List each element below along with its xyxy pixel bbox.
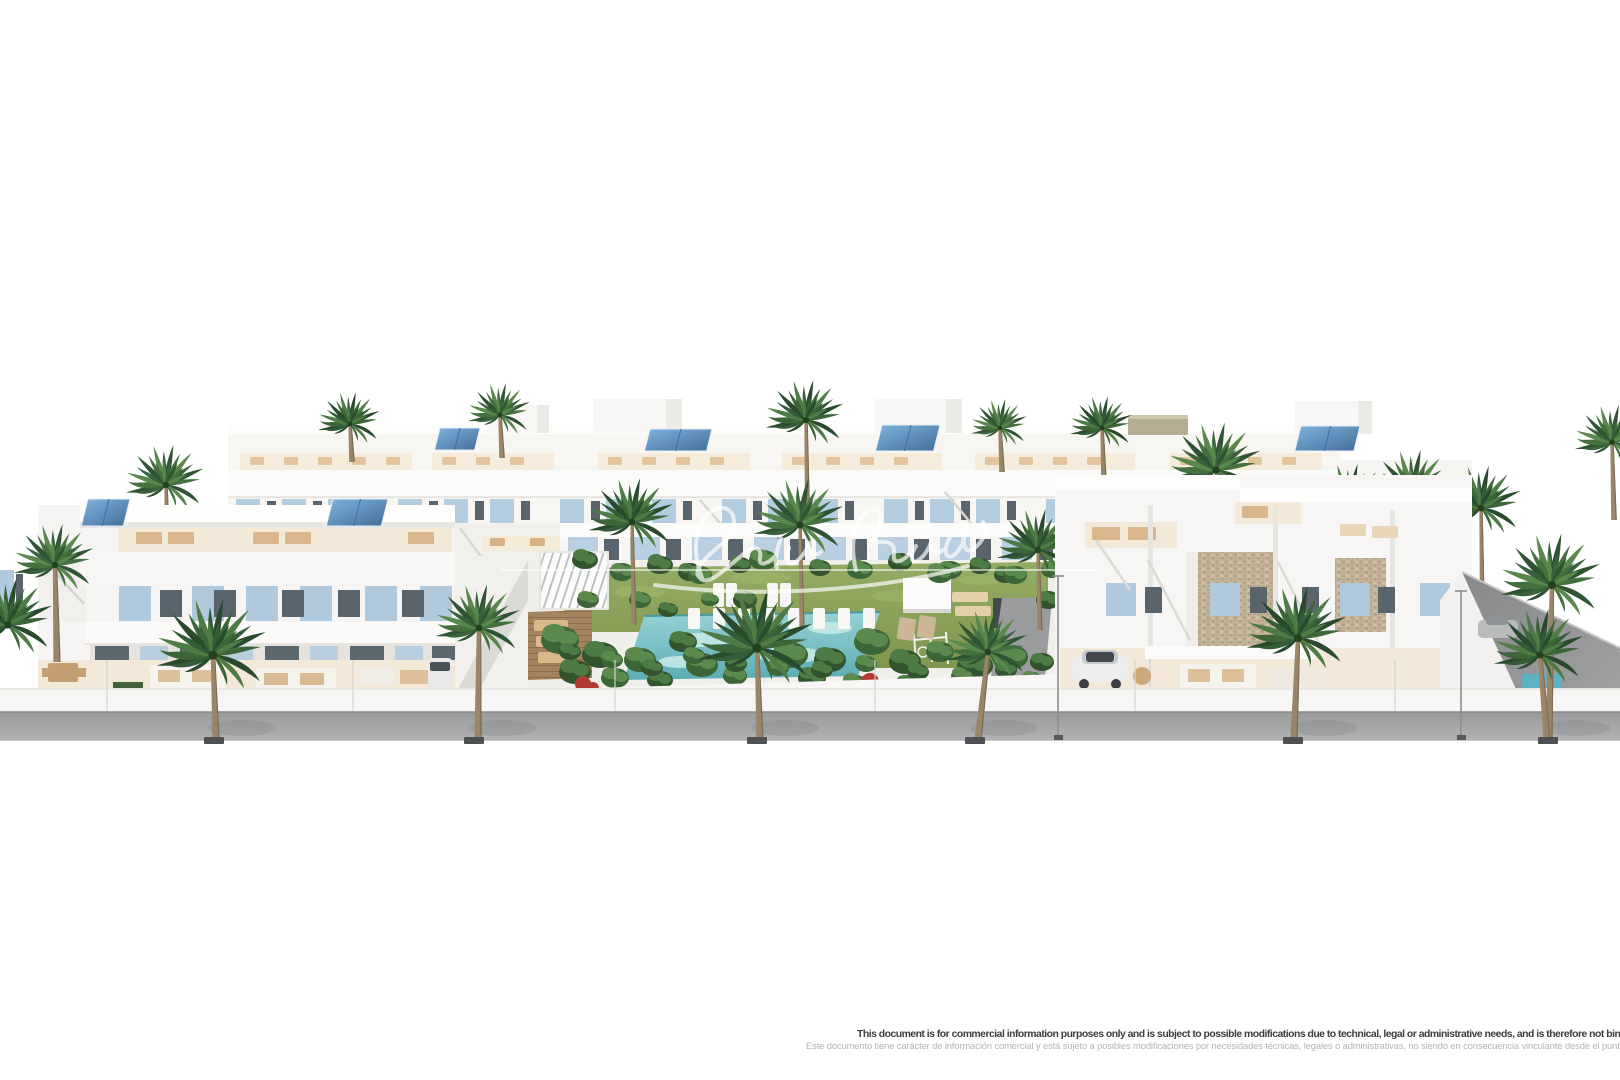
svg-text:This document is for commercia: This document is for commercial informat… [857,1029,1620,1040]
svg-text:Este documento tiene carácter: Este documento tiene carácter de informa… [806,1040,1620,1051]
